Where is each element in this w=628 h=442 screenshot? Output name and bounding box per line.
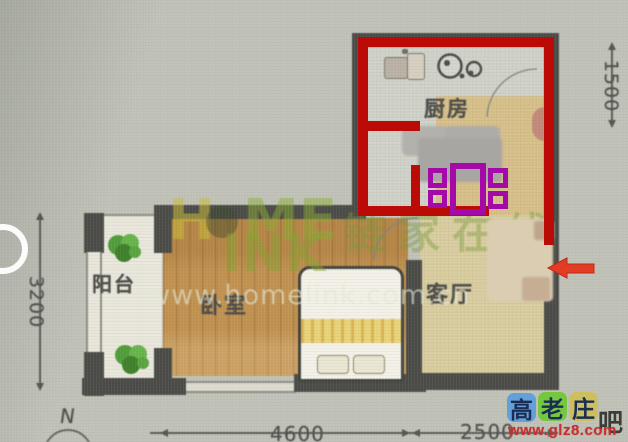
purple-chair-left-top [428,168,447,188]
watermark-glz8-tile-1: 高 [507,393,536,422]
floorplan-photo: 厨房 客厅 卧室 阳台 3200 1500 4600 2500 N H ME I… [0,0,628,442]
watermark-glz8-char-1: 高 [510,391,533,425]
watermark-glz8-url: www.glz8.com [508,422,617,439]
purple-chair-right-top [488,168,508,188]
watermark-glz8-char-3: 庄 [572,390,595,424]
red-arrow-icon [546,254,596,282]
purple-chair-right-bottom [488,191,508,209]
annotation-layer: 高 老 庄 吧 www.glz8.com [0,0,628,442]
red-annotation-mid-horizontal [358,121,420,131]
watermark-glz8: 高 老 庄 吧 www.glz8.com [505,391,628,441]
purple-table-rect [450,163,486,215]
white-ring-marker [0,224,28,274]
red-annotation-mid-vertical [411,165,420,216]
red-annotation-right [544,37,554,245]
purple-chair-left-bottom [428,190,447,208]
red-annotation-top [358,37,554,47]
watermark-glz8-char-2: 老 [541,390,564,424]
watermark-glz8-tile-3: 庄 [569,392,598,421]
watermark-glz8-tile-2: 老 [538,392,567,421]
